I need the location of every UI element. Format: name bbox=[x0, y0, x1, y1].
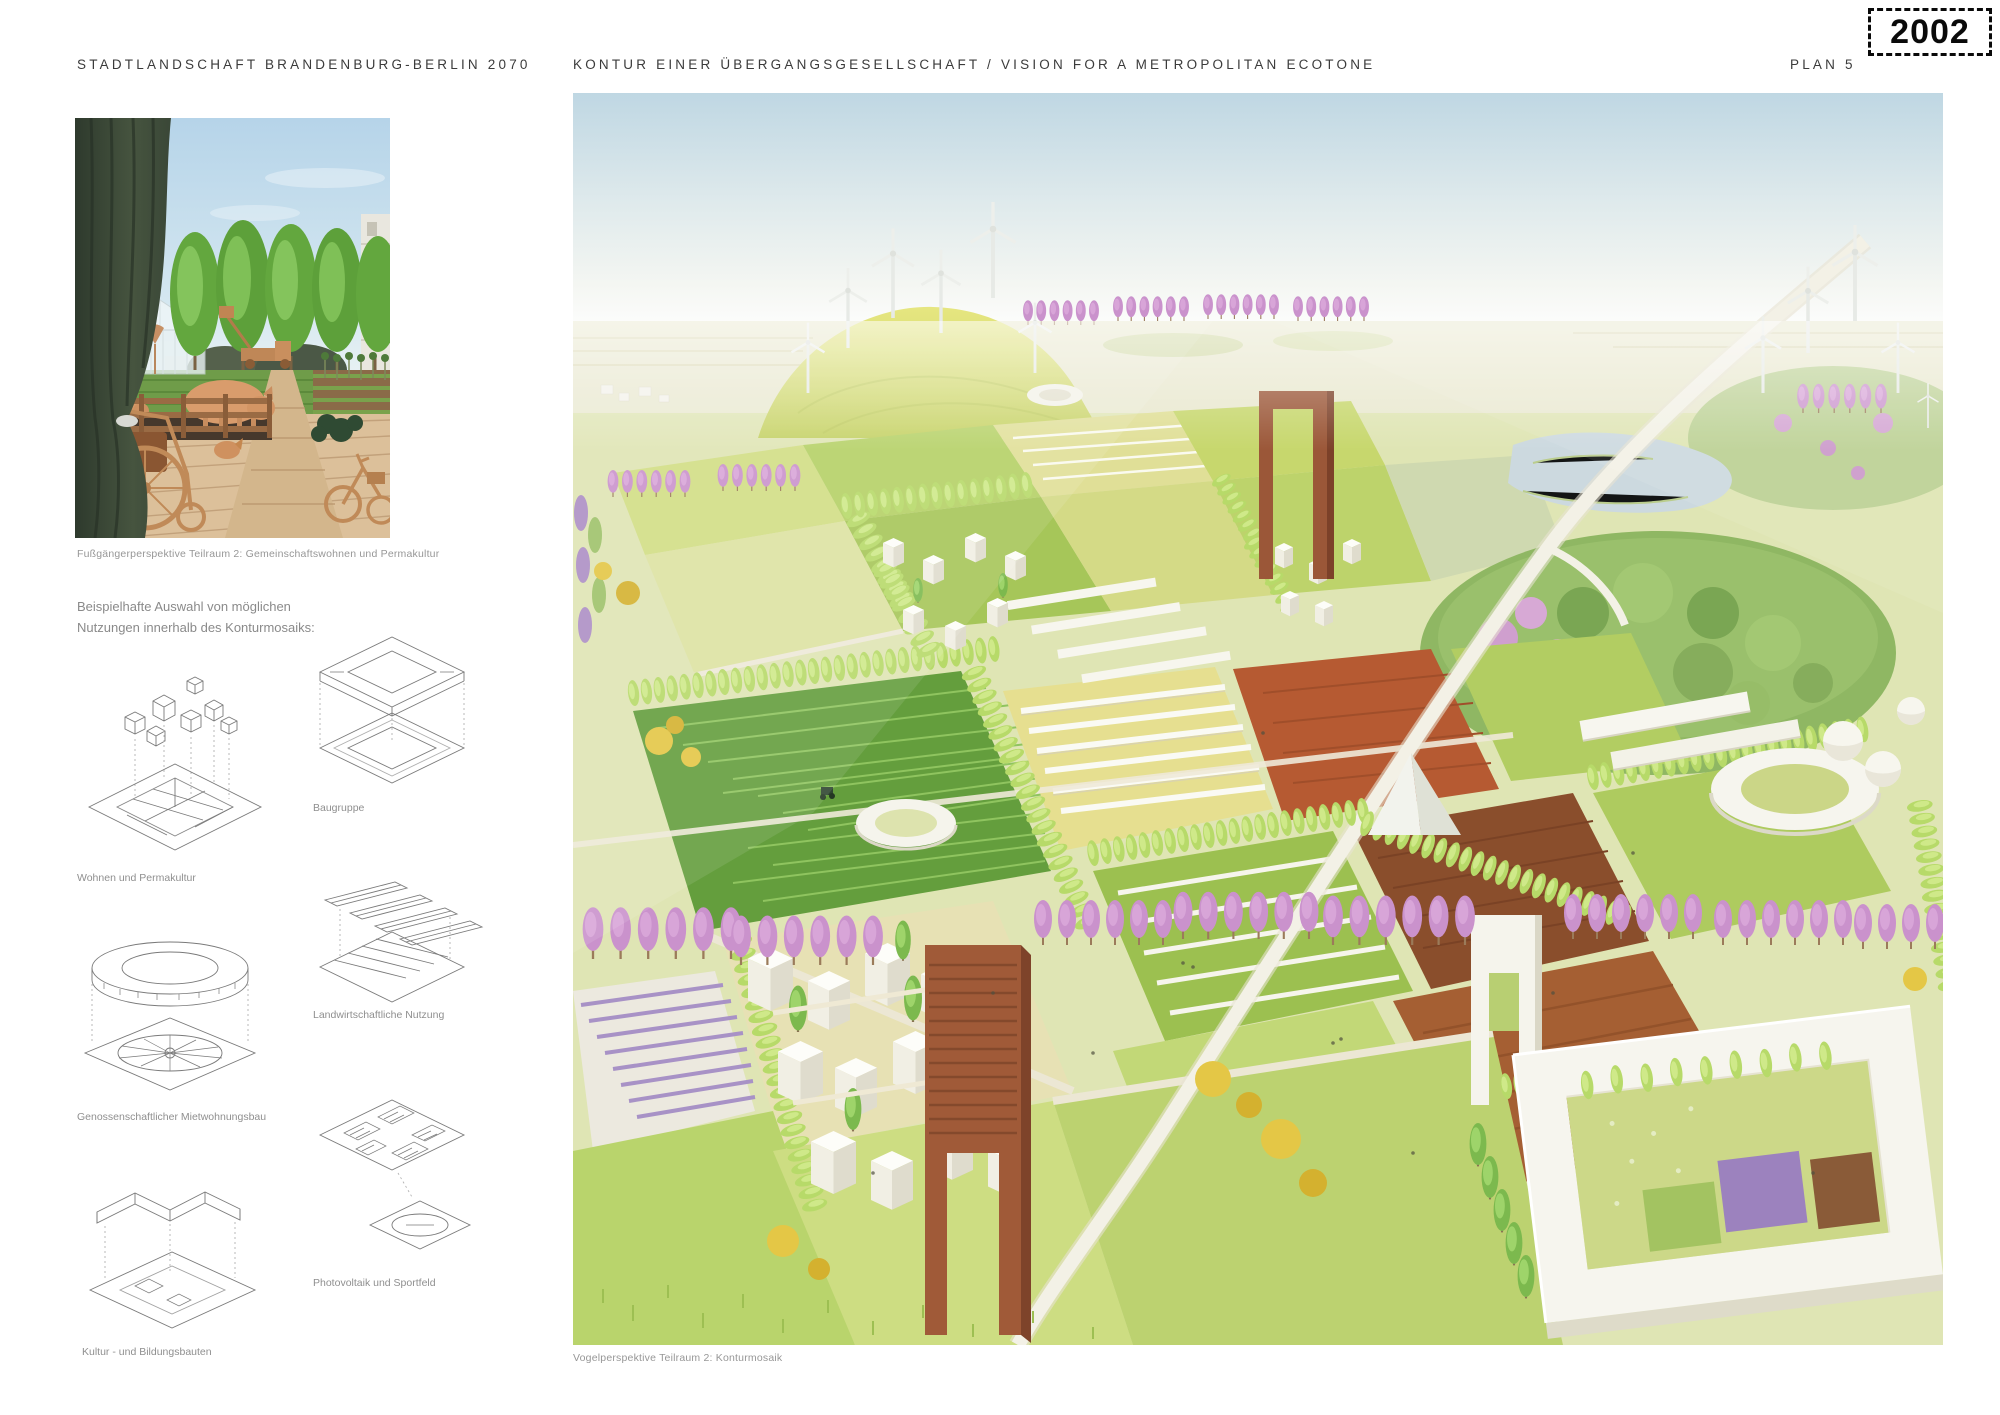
diagram-label: Wohnen und Permakultur bbox=[77, 872, 196, 884]
diagram-baugruppe bbox=[300, 615, 485, 795]
diagram-kultur-bildung bbox=[75, 1160, 270, 1340]
diagram-label: Kultur - und Bildungsbauten bbox=[82, 1346, 212, 1358]
dome-tank bbox=[1897, 697, 1925, 725]
diagram-wohnen-permakultur bbox=[75, 655, 275, 865]
diagram-photovoltaik bbox=[300, 1065, 485, 1270]
entry-number: 2002 bbox=[1890, 13, 1970, 52]
diagram-label: Genossenschaftlicher Mietwohnungsbau bbox=[77, 1111, 266, 1123]
photo-caption: Fußgängerperspektive Teilraum 2: Gemeins… bbox=[77, 548, 439, 560]
diagram-label: Baugruppe bbox=[313, 802, 364, 814]
project-title: STADTLANDSCHAFT BRANDENBURG-BERLIN 2070 bbox=[77, 57, 531, 72]
diagram-label: Photovoltaik und Sportfeld bbox=[313, 1277, 436, 1289]
plan-number: PLAN 5 bbox=[1790, 57, 1856, 72]
diagram-label: Landwirtschaftliche Nutzung bbox=[313, 1009, 444, 1021]
courtyard-building bbox=[1513, 1006, 1943, 1339]
entry-number-box: 2002 bbox=[1868, 8, 1992, 56]
board-title: KONTUR EINER ÜBERGANGSGESELLSCHAFT / VIS… bbox=[573, 57, 1375, 72]
dome-tank bbox=[1865, 751, 1901, 787]
pedestrian-perspective-image bbox=[75, 118, 390, 538]
ring-building-small bbox=[856, 799, 956, 849]
dome-tank bbox=[1823, 721, 1863, 761]
competition-board: 2002 STADTLANDSCHAFT BRANDENBURG-BERLIN … bbox=[0, 0, 2000, 1415]
ring-building-large bbox=[1711, 748, 1879, 834]
diagram-mietwohnungsbau bbox=[75, 920, 265, 1105]
aerial-caption: Vogelperspektive Teilraum 2: Konturmosai… bbox=[573, 1352, 782, 1364]
diagram-landwirtschaft bbox=[300, 855, 485, 1005]
birdseye-perspective-image bbox=[573, 93, 1943, 1345]
